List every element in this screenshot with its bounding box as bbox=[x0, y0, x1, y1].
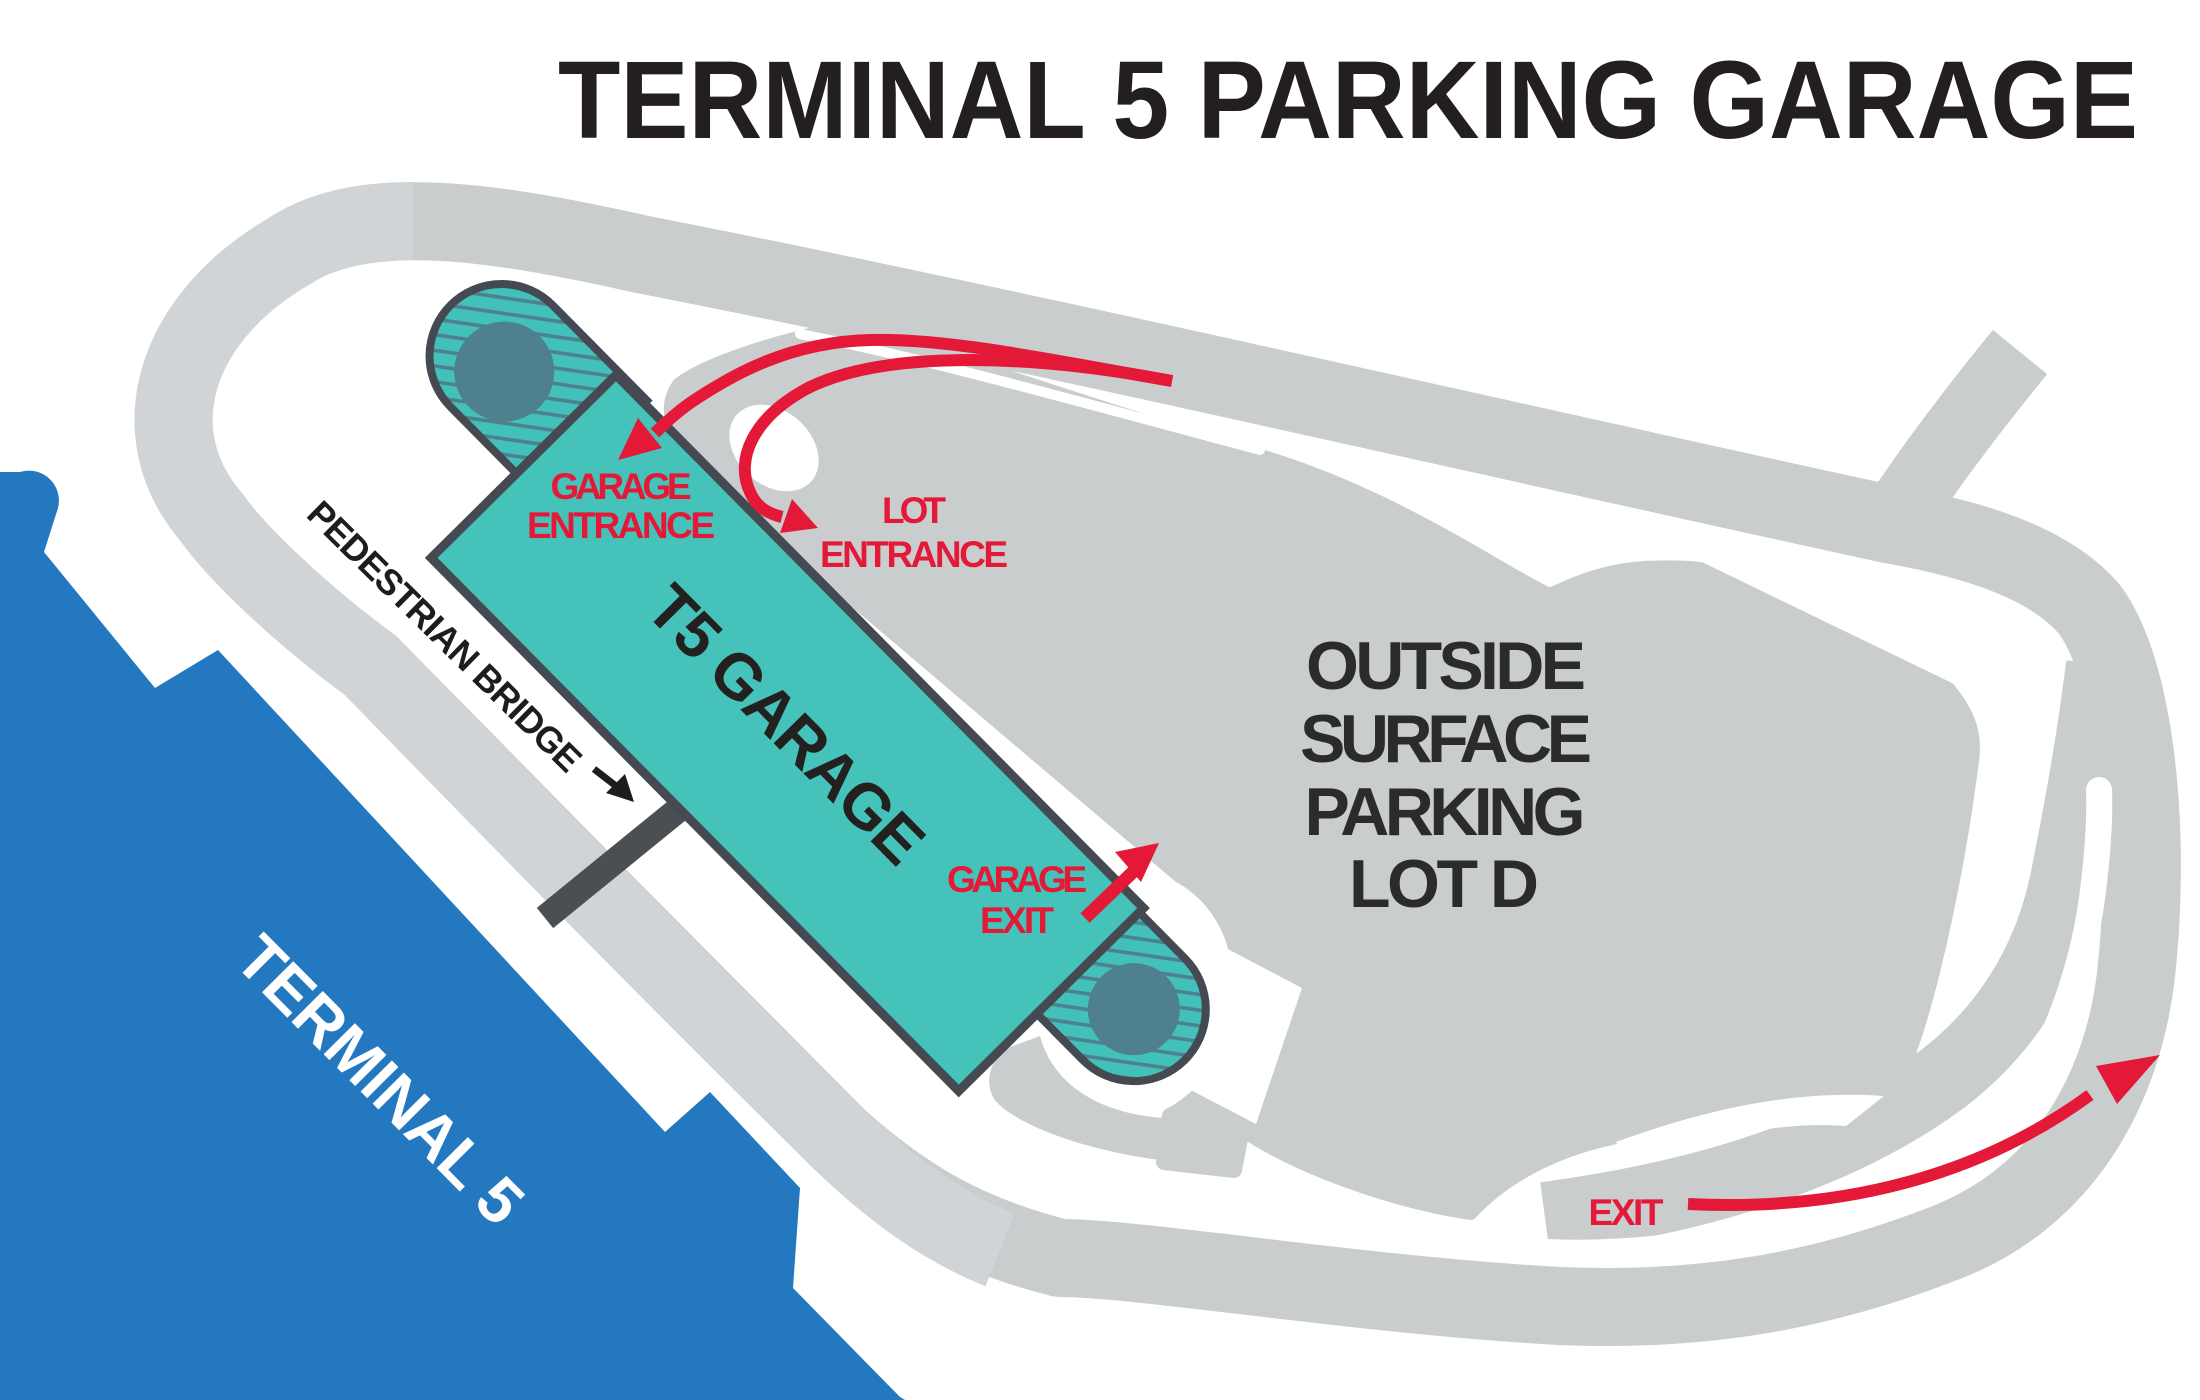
svg-text:ENTRANCE: ENTRANCE bbox=[527, 505, 715, 546]
svg-text:GARAGE: GARAGE bbox=[947, 859, 1087, 900]
svg-text:PARKING: PARKING bbox=[1305, 774, 1586, 850]
svg-text:TERMINAL 5 PARKING GARAGE: TERMINAL 5 PARKING GARAGE bbox=[558, 39, 2138, 162]
svg-text:ENTRANCE: ENTRANCE bbox=[820, 534, 1008, 575]
svg-text:EXIT: EXIT bbox=[980, 900, 1054, 941]
svg-text:GARAGE: GARAGE bbox=[551, 466, 692, 507]
svg-text:LOT: LOT bbox=[882, 490, 946, 531]
svg-text:LOT D: LOT D bbox=[1349, 846, 1539, 922]
svg-text:OUTSIDE: OUTSIDE bbox=[1306, 628, 1586, 704]
svg-text:EXIT: EXIT bbox=[1589, 1192, 1664, 1233]
svg-text:SURFACE: SURFACE bbox=[1300, 701, 1592, 777]
